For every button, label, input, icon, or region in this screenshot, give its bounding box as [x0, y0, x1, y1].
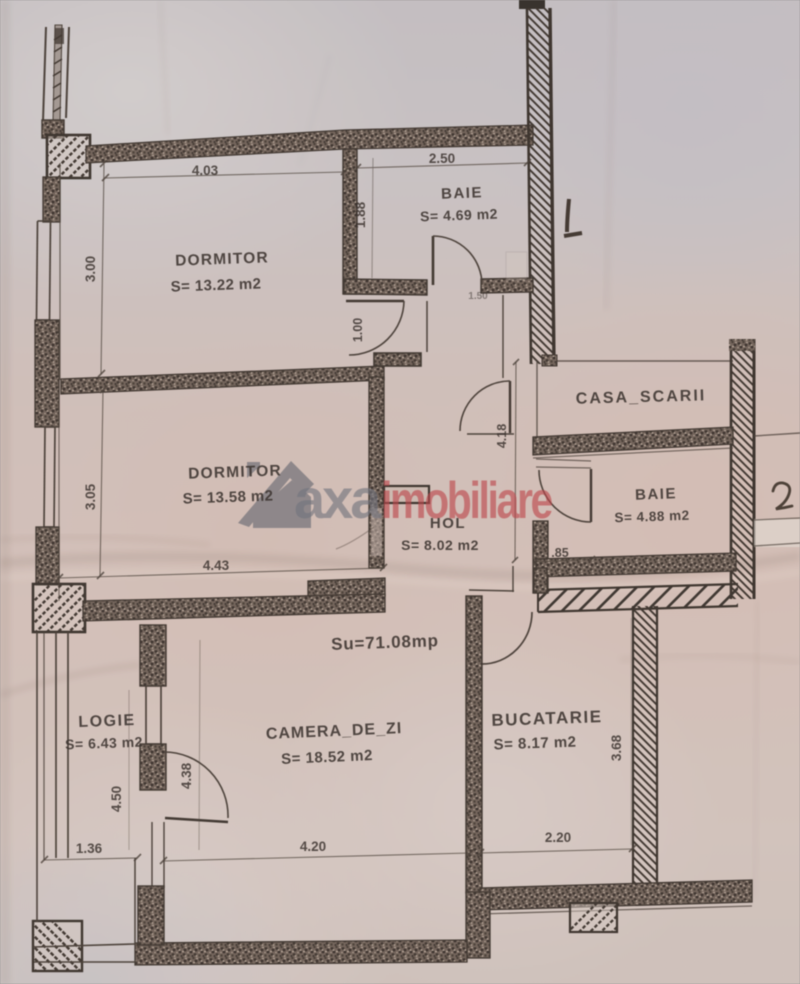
svg-text:S= 4.88 m2: S= 4.88 m2 [614, 508, 690, 526]
svg-text:1.50: 1.50 [468, 291, 488, 302]
svg-text:DORMITOR: DORMITOR [188, 462, 282, 482]
svg-text:DORMITOR: DORMITOR [175, 249, 269, 269]
svg-text:1.36: 1.36 [76, 841, 103, 856]
svg-text:4.38: 4.38 [179, 762, 194, 789]
svg-text:4.03: 4.03 [192, 163, 219, 178]
svg-text:S= 8.02 m2: S= 8.02 m2 [401, 537, 479, 553]
svg-text:4.20: 4.20 [300, 839, 326, 854]
svg-text:BUCATARIE: BUCATARIE [491, 707, 603, 730]
svg-text:BAIE: BAIE [441, 184, 483, 202]
svg-text:4.18: 4.18 [495, 424, 509, 448]
svg-text:S= 4.69 m2: S= 4.69 m2 [420, 206, 498, 225]
svg-text:1.88: 1.88 [353, 201, 368, 228]
svg-text:3.05: 3.05 [83, 483, 98, 510]
svg-text:.85: .85 [551, 546, 568, 560]
svg-text:CASA_SCARII: CASA_SCARII [576, 387, 707, 407]
svg-text:4.50: 4.50 [109, 786, 124, 812]
svg-text:4.43: 4.43 [203, 558, 230, 573]
svg-text:LOGIE: LOGIE [78, 712, 136, 731]
svg-text:S= 8.17 m2: S= 8.17 m2 [493, 734, 577, 754]
svg-text:1.00: 1.00 [351, 318, 365, 342]
svg-text:Su=71.08mp: Su=71.08mp [331, 631, 439, 654]
svg-text:2.50: 2.50 [429, 151, 455, 166]
svg-text:S= 13.22 m2: S= 13.22 m2 [170, 275, 261, 295]
svg-text:2.20: 2.20 [545, 830, 571, 845]
svg-text:S= 13.58 m2: S= 13.58 m2 [182, 487, 273, 507]
svg-text:S= 6.43 m2: S= 6.43 m2 [65, 734, 143, 753]
svg-text:imobiliare: imobiliare [381, 472, 553, 530]
svg-text:3.68: 3.68 [609, 734, 624, 761]
svg-text:axa: axa [294, 467, 382, 530]
svg-text:HOL: HOL [430, 515, 466, 532]
svg-text:BAIE: BAIE [635, 485, 677, 503]
svg-text:3.00: 3.00 [83, 256, 98, 282]
